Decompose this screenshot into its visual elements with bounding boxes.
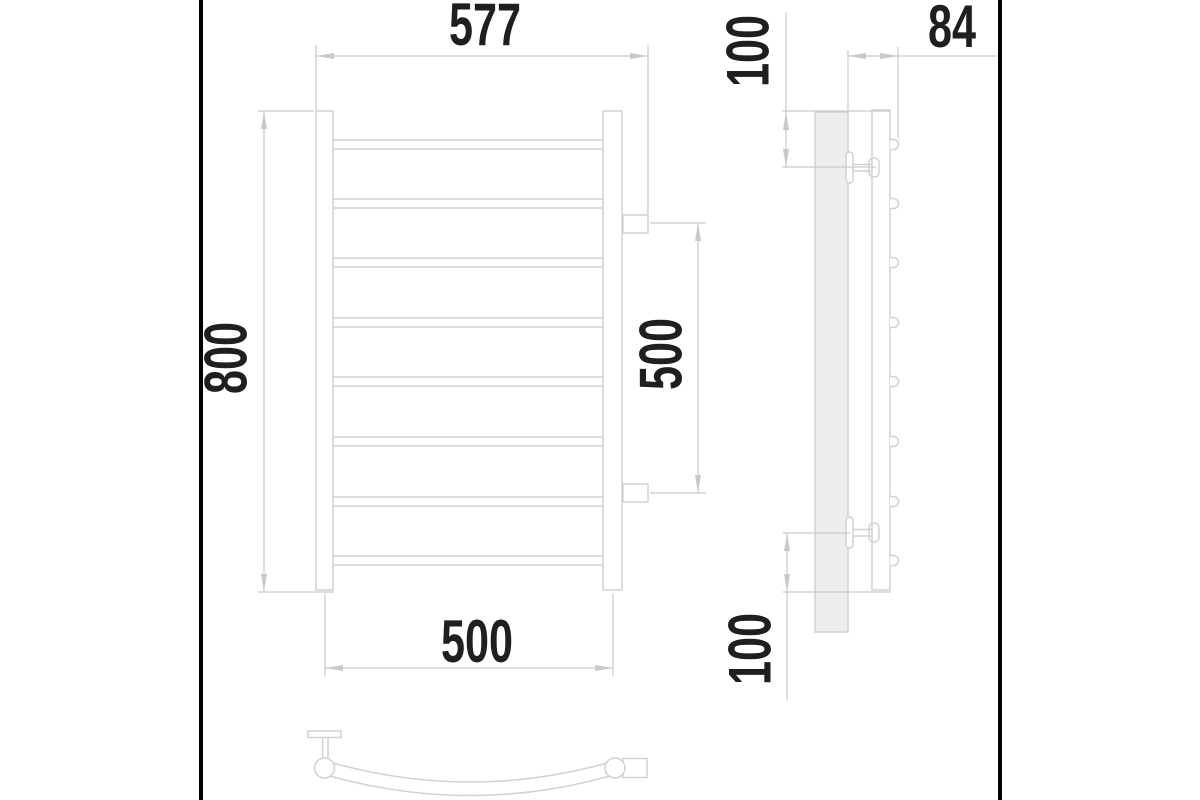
drawing-canvas: 577 800 500 500 (0, 0, 1200, 800)
bar-end-bump (890, 556, 899, 566)
dim-label-577: 577 (449, 0, 521, 59)
dim-100-bottom: 100 (718, 533, 891, 700)
dim-500v-arrow-bottom (695, 475, 701, 493)
dim-84: 84 (848, 0, 997, 139)
dim-84-arrow-right (880, 53, 898, 59)
dim-label-100-top: 100 (716, 15, 783, 87)
dim-800-arrow-top (261, 111, 267, 129)
bar-end-bump (890, 199, 899, 209)
plan-right-post-section (605, 758, 625, 778)
side-view (815, 110, 899, 632)
curved-tube-upper-edge (333, 763, 607, 782)
dim-800-arrow-bottom (261, 574, 267, 592)
dim-577-arrow-right (630, 53, 648, 59)
bar-end-bump (890, 258, 899, 268)
plan-bracket-stem (323, 738, 329, 759)
dim-100b-arrow-up (784, 533, 790, 551)
dim-label-84: 84 (928, 0, 976, 61)
left-post (316, 111, 333, 590)
bar-end-bump (890, 497, 899, 507)
dim-100t-arrow-up (783, 112, 789, 130)
dim-500-connections: 500 (629, 223, 706, 493)
dim-100-top: 100 (716, 12, 890, 167)
bar-lines-group (333, 140, 603, 565)
bar-end-bump (890, 377, 899, 387)
wall-plate (815, 112, 848, 632)
plan-wall-bracket (308, 731, 341, 759)
dim-577: 577 (316, 0, 648, 214)
dim-84-arrow-left (848, 53, 866, 59)
dim-label-500-posts: 500 (441, 609, 513, 676)
plan-left-post-section (315, 758, 335, 778)
bar-end-bump (890, 140, 899, 150)
plan-bracket-plate (308, 731, 341, 738)
dim-label-100-bottom: 100 (718, 613, 785, 685)
dim-500h-arrow-left (325, 665, 343, 671)
dim-100b-arrow-down (784, 574, 790, 592)
dim-500v-arrow-top (695, 223, 701, 241)
dim-800: 800 (194, 111, 334, 592)
bar-end-bump (890, 318, 899, 328)
post-profile (872, 110, 890, 590)
dim-label-500-connections: 500 (629, 318, 696, 390)
dim-100t-arrow-down (783, 149, 789, 167)
dim-500-posts: 500 (325, 593, 613, 676)
dim-label-800: 800 (194, 322, 261, 394)
bottom-connection-fitting (623, 484, 648, 502)
dim-577-arrow-left (316, 53, 334, 59)
curved-tube-lower-edge (330, 776, 610, 796)
plan-view (308, 731, 647, 796)
bar-end-bumps-group (890, 140, 899, 566)
front-view (316, 111, 648, 590)
bar-end-bump (890, 437, 899, 447)
right-post (603, 111, 622, 590)
top-connection-fitting (623, 215, 648, 233)
dim-500h-arrow-right (595, 665, 613, 671)
towel-rail-drawing: 577 800 500 500 (0, 0, 1200, 800)
plan-connection-fitting (623, 759, 647, 778)
